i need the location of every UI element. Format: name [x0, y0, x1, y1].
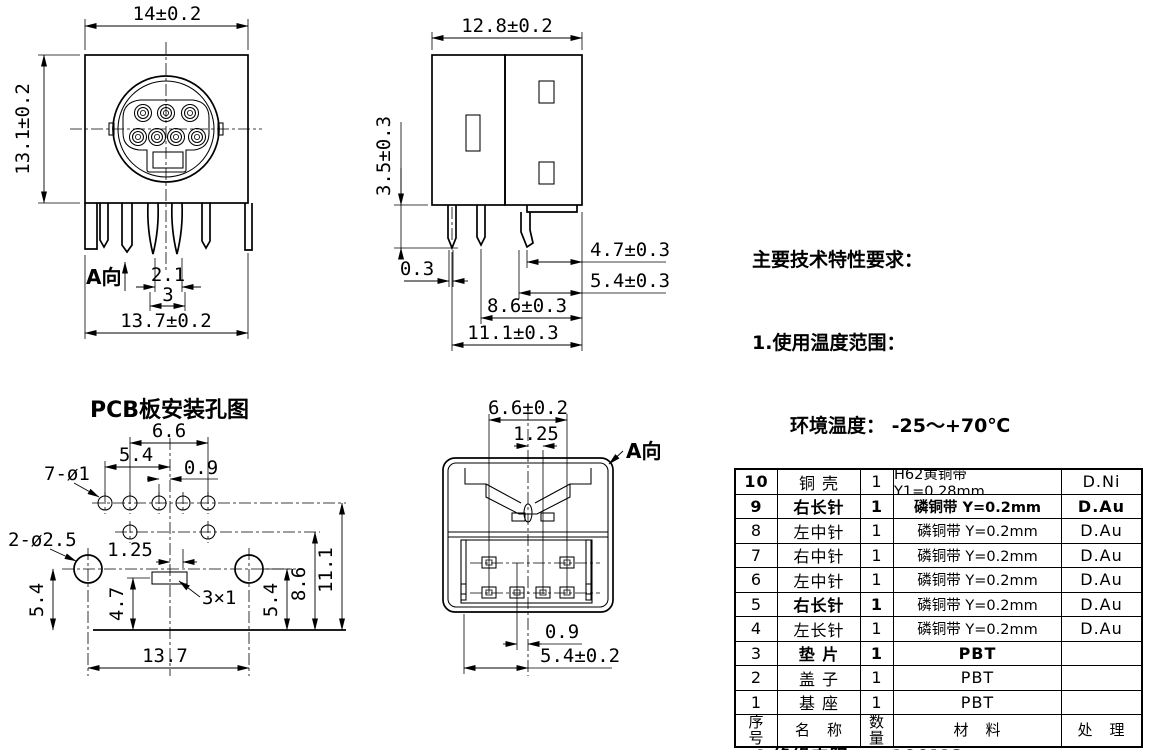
- dim-pcb-125: 1.25: [107, 539, 153, 561]
- table-cell: 1: [861, 593, 894, 618]
- table-header-no: 序 号: [736, 715, 778, 747]
- table-cell: PBT: [894, 691, 1062, 716]
- dim-pcb-47: 4.7: [106, 587, 128, 621]
- table-cell: [1062, 666, 1141, 691]
- table-cell: 2: [736, 666, 778, 691]
- table-cell: 右长针: [778, 593, 861, 618]
- spec-line: 1.使用温度范围：: [752, 330, 1108, 358]
- dim-front-pitch2: 3: [162, 284, 173, 306]
- table-cell: 左长针: [778, 617, 861, 642]
- dim-pcb-86: 8.6: [288, 567, 310, 601]
- pcb-view: PCB板安装孔图 6.6 5.4: [8, 397, 346, 676]
- table-cell: 1: [861, 617, 894, 642]
- front-view: 14±0.2 13.1±0.2 A向 2.1 3 13.7±0.2: [12, 3, 262, 339]
- table-header-name: 名 称: [778, 715, 861, 747]
- dim-side-pin-width: 0.3: [400, 258, 434, 280]
- dim-pcb-66: 6.6: [152, 420, 186, 442]
- table-cell: 1: [861, 544, 894, 569]
- side-view: 12.8±0.2 3.5±0.3 0.3 4.7±0.3 5.4±0.3 8.6…: [373, 15, 670, 351]
- terminal-cavity: [461, 540, 592, 603]
- dim-side-pin-height: 3.5±0.3: [373, 116, 395, 196]
- table-cell: 1: [861, 470, 894, 495]
- side-slot-top: [539, 81, 554, 103]
- table-cell: 1: [861, 495, 894, 520]
- table-cell: D.Au: [1062, 617, 1141, 642]
- key-slot: [153, 152, 183, 168]
- key-slot-hole: [152, 572, 187, 584]
- table-cell: 8: [736, 519, 778, 544]
- table-header-material: 材 料: [894, 715, 1062, 747]
- table-cell: 6: [736, 568, 778, 593]
- table-cell: [1062, 691, 1141, 716]
- bottom-view: 6.6±0.2 1.25 A向 0.9 5.4±0.2: [443, 397, 661, 676]
- table-cell: [1062, 642, 1141, 667]
- table-cell: H62黄铜带 Y1=0.28mm: [894, 470, 1062, 495]
- dim-bottom-125: 1.25: [513, 423, 559, 445]
- side-slot-bottom: [539, 162, 554, 184]
- dim-pcb-54-left: 5.4: [26, 583, 48, 617]
- table-cell: 1: [861, 666, 894, 691]
- view-a-label-bottom: A向: [626, 439, 661, 463]
- dim-pcb-111: 11.1: [315, 547, 337, 593]
- spec-line: 主要技术特性要求：: [752, 247, 1108, 275]
- table-cell: D.Au: [1062, 568, 1141, 593]
- table-cell: 1: [861, 691, 894, 716]
- side-step: [527, 205, 577, 212]
- table-cell: 铜 壳: [778, 470, 861, 495]
- table-cell: 5: [736, 593, 778, 618]
- dim-bottom-09: 0.9: [545, 621, 579, 643]
- table-header-process: 处 理: [1062, 715, 1141, 747]
- table-cell: 左中针: [778, 519, 861, 544]
- dim-pcb-137: 13.7: [142, 645, 188, 667]
- dim-side-86: 8.6±0.3: [487, 295, 567, 317]
- table-cell: 1: [736, 691, 778, 716]
- dim-pcb-09: 0.9: [184, 457, 218, 479]
- dim-front-base: 13.7±0.2: [120, 310, 212, 332]
- dim-side-54: 5.4±0.3: [590, 270, 670, 292]
- table-cell: 3: [736, 642, 778, 667]
- label-holes-7: 7-ø1: [44, 463, 90, 485]
- table-cell: 9: [736, 495, 778, 520]
- table-cell: 磷铜带 Y=0.2mm: [894, 495, 1062, 520]
- table-cell: 盖 子: [778, 666, 861, 691]
- table-cell: PBT: [894, 642, 1062, 667]
- label-holes-2: 2-ø2.5: [8, 529, 77, 551]
- spec-line: 环境温度： -25～+70℃: [752, 413, 1108, 441]
- table-cell: 磷铜带 Y=0.2mm: [894, 617, 1062, 642]
- table-cell: 磷铜带 Y=0.2mm: [894, 568, 1062, 593]
- table-cell: 右长针: [778, 495, 861, 520]
- table-cell: PBT: [894, 666, 1062, 691]
- dim-front-width: 14±0.2: [133, 3, 202, 25]
- dim-bottom-66: 6.6±0.2: [488, 397, 568, 419]
- table-cell: D.Ni: [1062, 470, 1141, 495]
- front-legs: [85, 203, 252, 254]
- table-cell: D.Au: [1062, 495, 1141, 520]
- side-slot-left: [466, 115, 480, 151]
- table-cell: D.Au: [1062, 544, 1141, 569]
- view-a-label-front: A向: [86, 265, 121, 289]
- dim-bottom-54: 5.4±0.2: [540, 645, 620, 667]
- parts-table: 10 铜 壳 1 H62黄铜带 Y1=0.28mm D.Ni 9 右长针 1 磷…: [734, 468, 1143, 748]
- engineering-drawing: 14±0.2 13.1±0.2 A向 2.1 3 13.7±0.2: [0, 0, 1150, 750]
- side-pins: [448, 205, 533, 248]
- table-cell: 基 座: [778, 691, 861, 716]
- table-cell: D.Au: [1062, 593, 1141, 618]
- table-cell: 1: [861, 568, 894, 593]
- table-cell: 磷铜带 Y=0.2mm: [894, 593, 1062, 618]
- dim-side-width: 12.8±0.2: [461, 15, 553, 37]
- dim-front-height: 13.1±0.2: [12, 83, 34, 175]
- dim-side-47: 4.7±0.3: [590, 239, 670, 261]
- table-cell: 垫 片: [778, 642, 861, 667]
- table-cell: 7: [736, 544, 778, 569]
- dim-side-111: 11.1±0.3: [467, 322, 559, 344]
- dim-pcb-54-top: 5.4: [119, 444, 153, 466]
- table-cell: 4: [736, 617, 778, 642]
- table-cell: 磷铜带 Y=0.2mm: [894, 519, 1062, 544]
- dim-front-pitch: 2.1: [151, 264, 185, 286]
- table-cell: 右中针: [778, 544, 861, 569]
- table-cell: 10: [736, 470, 778, 495]
- table-cell: 1: [861, 642, 894, 667]
- dim-pcb-54-right: 5.4: [260, 583, 282, 617]
- table-cell: 磷铜带 Y=0.2mm: [894, 544, 1062, 569]
- table-cell: 1: [861, 519, 894, 544]
- table-header-qty: 数 量: [861, 715, 894, 747]
- pin-holes: [130, 105, 206, 146]
- table-cell: D.Au: [1062, 519, 1141, 544]
- label-slot-size: 3×1: [202, 587, 236, 609]
- table-cell: 左中针: [778, 568, 861, 593]
